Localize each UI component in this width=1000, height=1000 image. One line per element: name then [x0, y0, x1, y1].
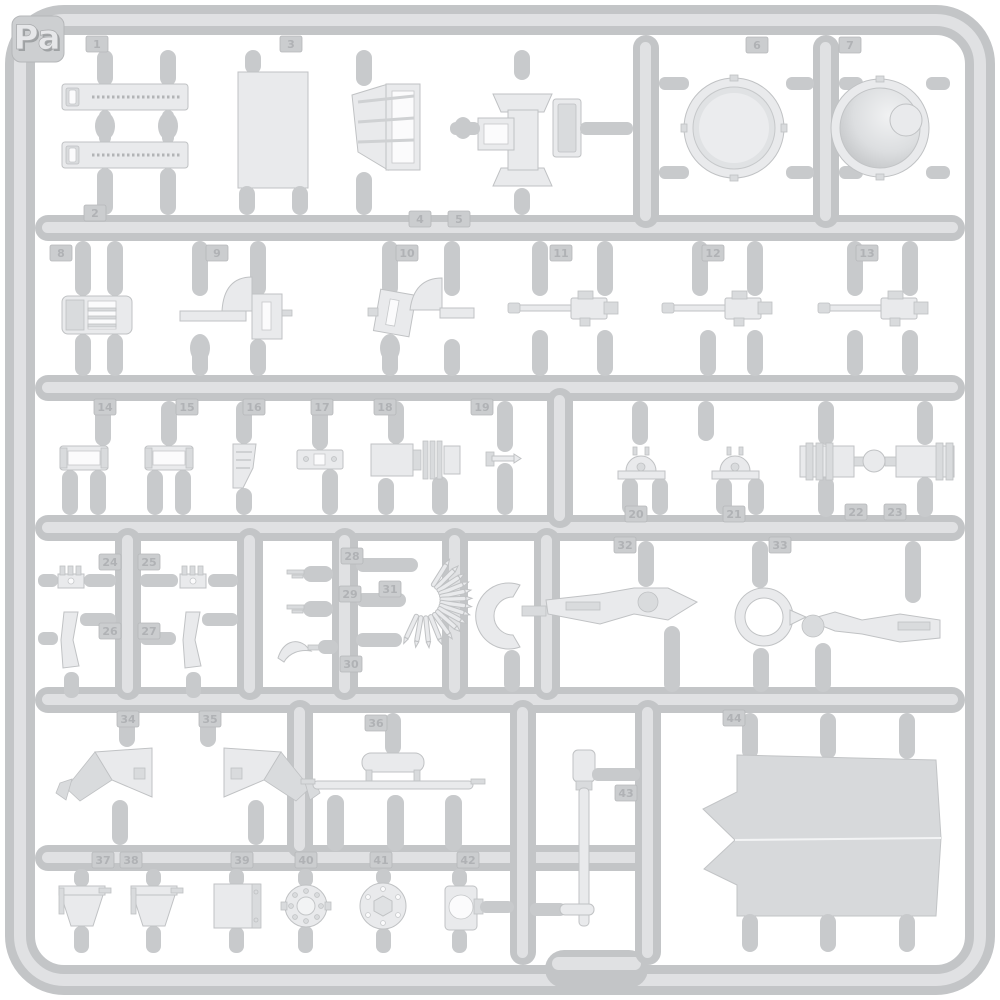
- part-strip-1: [62, 50, 188, 110]
- part-tag-39: 39: [231, 852, 253, 868]
- svg-text:22: 22: [848, 506, 863, 519]
- gate-joints: [95, 110, 178, 144]
- part-clamp-24: [58, 566, 84, 588]
- svg-text:26: 26: [102, 625, 118, 638]
- svg-text:30: 30: [343, 658, 359, 671]
- part-tag-22: 22: [845, 504, 867, 520]
- part-tag-11: 11: [550, 245, 572, 261]
- part-plate-3: [238, 50, 308, 215]
- part-tag-43: 43: [615, 785, 637, 801]
- part-tag-36: 36: [365, 715, 387, 731]
- part-pin-28: [287, 566, 333, 582]
- part-ring-32: [735, 541, 806, 692]
- part-tag-41: 41: [370, 852, 392, 868]
- part-pulley-40: [281, 885, 331, 927]
- part-bracket-38: [131, 886, 183, 926]
- svg-text:2: 2: [91, 207, 99, 220]
- svg-text:44: 44: [726, 712, 742, 725]
- part-plate-39: [214, 884, 261, 928]
- svg-text:5: 5: [455, 213, 463, 226]
- part-tag-6: 6: [746, 37, 768, 53]
- svg-text:13: 13: [859, 247, 874, 260]
- part-tag-44: 44: [723, 710, 745, 726]
- part-arch-21: [712, 447, 759, 479]
- svg-text:24: 24: [102, 556, 118, 569]
- part-flange-41: [360, 883, 406, 929]
- part-tag-13: 13: [856, 245, 878, 261]
- svg-text:36: 36: [368, 717, 384, 730]
- part-tag-38: 38: [120, 852, 142, 868]
- svg-text:19: 19: [474, 401, 489, 414]
- part-tag-18: 18: [374, 399, 396, 415]
- part-tag-12: 12: [702, 245, 724, 261]
- part-tag-10: 10: [396, 245, 418, 261]
- part-tag-1: 1: [86, 36, 108, 52]
- part-linkage-arm-right-33: [802, 541, 940, 692]
- row4-pin-cell: [278, 566, 338, 662]
- svg-text:4: 4: [416, 213, 424, 226]
- part-horn-30: [278, 640, 338, 662]
- svg-text:33: 33: [772, 539, 787, 552]
- part-ring-mount-42: [445, 886, 514, 930]
- svg-text:18: 18: [377, 401, 392, 414]
- part-machinegun-11: [508, 291, 618, 326]
- part-axle-rack-36: [301, 713, 485, 851]
- part-machinegun-12: [662, 291, 772, 326]
- part-machinegun-13: [818, 291, 928, 326]
- svg-text:25: 25: [141, 556, 156, 569]
- part-tag-27: 27: [138, 623, 160, 639]
- svg-text:38: 38: [123, 854, 138, 867]
- part-tag-35: 35: [199, 711, 221, 727]
- part-tag-20: 20: [625, 506, 647, 522]
- part-pin-29: [287, 601, 333, 617]
- part-rod-43: [530, 750, 640, 926]
- part-tag-17: 17: [311, 399, 333, 415]
- svg-text:15: 15: [179, 401, 194, 414]
- part-tag-7: 7: [839, 37, 861, 53]
- part-hatch-6: [659, 75, 814, 181]
- part-tag-5: 5: [448, 211, 470, 227]
- part-periscope-frame-15: [145, 446, 193, 470]
- part-tag-42: 42: [457, 852, 479, 868]
- svg-text:32: 32: [617, 539, 632, 552]
- part-clamp-25: [180, 566, 206, 588]
- part-tag-25: 25: [138, 554, 160, 570]
- part-tag-31: 31: [379, 581, 401, 597]
- part-tag-30: 30: [340, 656, 362, 672]
- part-tag-8: 8: [50, 245, 72, 261]
- svg-text:9: 9: [213, 247, 221, 260]
- part-tag-9: 9: [206, 245, 228, 261]
- svg-text:42: 42: [460, 854, 475, 867]
- svg-text:40: 40: [298, 854, 314, 867]
- part-clip-plate-17: [297, 450, 343, 469]
- svg-text:16: 16: [246, 401, 262, 414]
- sprue-letter: Pa: [14, 18, 61, 58]
- sprue-letter-plate: Pa Pa: [12, 16, 64, 62]
- part-tag-24: 24: [99, 554, 121, 570]
- svg-text:29: 29: [342, 588, 357, 601]
- svg-text:7: 7: [846, 39, 854, 52]
- svg-text:31: 31: [382, 583, 397, 596]
- svg-text:27: 27: [141, 625, 156, 638]
- row2-gates: [75, 241, 918, 376]
- svg-text:28: 28: [344, 550, 359, 563]
- svg-text:3: 3: [287, 38, 295, 51]
- part-linkage-arm-left: [546, 541, 697, 692]
- svg-text:23: 23: [887, 506, 902, 519]
- part-fender-34: [56, 713, 152, 845]
- svg-text:10: 10: [399, 247, 415, 260]
- svg-text:41: 41: [373, 854, 388, 867]
- svg-text:43: 43: [618, 787, 633, 800]
- part-tag-15: 15: [176, 399, 198, 415]
- svg-text:12: 12: [705, 247, 720, 260]
- sprue-photo: Pa Pa: [0, 0, 1000, 1000]
- part-hatch-7: [831, 76, 950, 180]
- part-tag-3: 3: [280, 36, 302, 52]
- part-buckle-8: [62, 296, 132, 334]
- svg-text:17: 17: [314, 401, 329, 414]
- part-tag-4: 4: [409, 211, 431, 227]
- part-tag-29: 29: [339, 586, 361, 602]
- part-tag-37: 37: [92, 852, 114, 868]
- part-periscope-frame-14: [60, 446, 108, 470]
- svg-text:20: 20: [628, 508, 644, 521]
- part-block-18: [371, 441, 460, 479]
- svg-text:14: 14: [97, 401, 113, 414]
- part-tag-23: 23: [884, 504, 906, 520]
- part-panel-44: [703, 713, 941, 952]
- svg-text:35: 35: [202, 713, 217, 726]
- svg-text:39: 39: [234, 854, 249, 867]
- part-tag-28: 28: [341, 548, 363, 564]
- svg-text:34: 34: [120, 713, 136, 726]
- part-wedge-16: [233, 444, 256, 488]
- part-arch-20: [618, 447, 665, 479]
- svg-text:11: 11: [553, 247, 568, 260]
- svg-text:37: 37: [95, 854, 110, 867]
- part-frame-4: [352, 50, 420, 215]
- part-tag-26: 26: [99, 623, 121, 639]
- part-tag-14: 14: [94, 399, 116, 415]
- part-mount-5: [450, 50, 633, 215]
- part-tag-21: 21: [723, 506, 745, 522]
- part-tag-19: 19: [471, 399, 493, 415]
- svg-text:21: 21: [726, 508, 741, 521]
- part-tag-2: 2: [84, 205, 106, 221]
- part-tag-40: 40: [295, 852, 317, 868]
- part-tag-34: 34: [117, 711, 139, 727]
- svg-text:8: 8: [57, 247, 65, 260]
- svg-text:1: 1: [93, 38, 101, 51]
- part-tag-32: 32: [614, 537, 636, 553]
- svg-text:6: 6: [753, 39, 761, 52]
- part-tag-33: 33: [769, 537, 791, 553]
- part-tag-16: 16: [243, 399, 265, 415]
- part-grooved-blocks-22-23: [800, 443, 954, 480]
- part-strip-2: [62, 142, 188, 215]
- part-bracket-37: [59, 886, 111, 926]
